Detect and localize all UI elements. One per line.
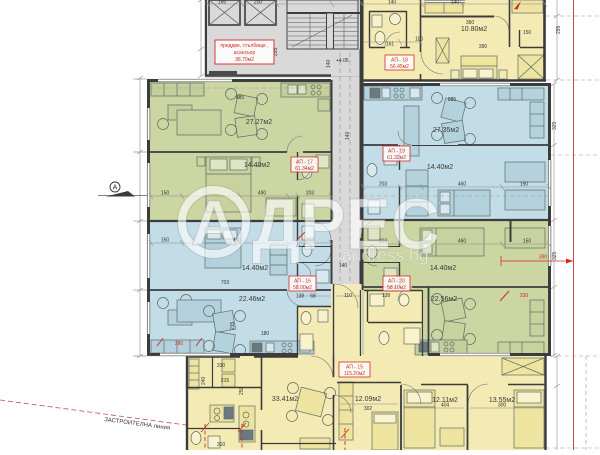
svg-text:325: 325	[552, 251, 558, 260]
svg-text:180: 180	[261, 331, 270, 337]
svg-text:460: 460	[458, 239, 467, 245]
svg-text:61.34м2: 61.34м2	[295, 166, 314, 172]
svg-text:12.09м2: 12.09м2	[355, 396, 381, 403]
svg-text:390: 390	[479, 44, 488, 50]
svg-text:АП - 16: АП - 16	[294, 279, 311, 285]
svg-text:address.bg: address.bg	[342, 245, 429, 265]
svg-text:14.40м2: 14.40м2	[427, 164, 453, 171]
svg-text:A: A	[113, 185, 118, 192]
svg-text:280: 280	[175, 341, 184, 347]
svg-text:703: 703	[221, 280, 230, 286]
svg-text:885: 885	[236, 95, 245, 101]
svg-text:14.40м2: 14.40м2	[430, 265, 456, 272]
svg-text:+4.05: +4.05	[336, 58, 349, 64]
svg-text:110: 110	[344, 293, 352, 299]
svg-text:АП - 15: АП - 15	[346, 365, 363, 371]
svg-text:310: 310	[217, 363, 226, 369]
svg-text:61.32м2: 61.32м2	[387, 155, 406, 161]
svg-text:27.27м2: 27.27м2	[246, 119, 272, 126]
svg-text:А: А	[191, 187, 237, 259]
svg-text:22.46м2: 22.46м2	[239, 296, 265, 303]
svg-text:22.56м2: 22.56м2	[431, 296, 457, 303]
svg-text:215: 215	[230, 321, 236, 330]
svg-text:АП - 20: АП - 20	[388, 279, 405, 285]
svg-text:390: 390	[539, 255, 548, 261]
svg-text:230: 230	[520, 293, 529, 299]
svg-text:460: 460	[458, 182, 467, 188]
svg-text:АП - 19: АП - 19	[388, 149, 405, 155]
svg-text:13.55м2: 13.55м2	[489, 397, 515, 404]
svg-text:140: 140	[326, 59, 332, 68]
svg-text:150: 150	[520, 182, 529, 188]
svg-text:140: 140	[345, 131, 351, 140]
svg-text:240: 240	[201, 376, 207, 385]
svg-text:161: 161	[386, 42, 395, 48]
svg-text:885: 885	[448, 97, 457, 103]
svg-text:140: 140	[451, 0, 460, 6]
svg-text:56.45м2: 56.45м2	[390, 64, 409, 70]
svg-text:14.40м2: 14.40м2	[242, 265, 268, 272]
svg-text:преддве, стълбище ,: преддве, стълбище ,	[220, 43, 268, 49]
svg-text:33.41м2: 33.41м2	[272, 396, 298, 403]
svg-text:310: 310	[217, 442, 226, 448]
svg-text:27.35м2: 27.35м2	[433, 127, 459, 134]
svg-text:302: 302	[364, 406, 373, 412]
svg-text:150: 150	[523, 239, 532, 245]
svg-text:асансьор: асансьор	[234, 50, 256, 56]
svg-text:110: 110	[415, 37, 423, 43]
svg-text:14.40м2: 14.40м2	[244, 162, 270, 169]
svg-text:38.70м2: 38.70м2	[235, 57, 254, 63]
svg-text:200: 200	[254, 0, 263, 6]
svg-text:115.20м2: 115.20м2	[344, 371, 365, 377]
svg-text:58.00м2: 58.00м2	[293, 285, 312, 291]
svg-text:140: 140	[388, 0, 397, 6]
svg-text:138: 138	[382, 293, 391, 299]
svg-text:10.80м2: 10.80м2	[461, 26, 487, 33]
svg-text:250: 250	[239, 386, 245, 395]
svg-text:138: 138	[296, 294, 305, 300]
svg-text:68: 68	[310, 294, 316, 300]
svg-text:150: 150	[523, 30, 532, 36]
svg-text:12.11м2: 12.11м2	[432, 397, 458, 404]
svg-text:325: 325	[552, 121, 558, 130]
svg-text:150: 150	[161, 238, 170, 244]
svg-text:215: 215	[221, 378, 230, 384]
svg-text:АП - 18: АП - 18	[391, 58, 408, 64]
svg-text:150: 150	[161, 191, 170, 197]
svg-text:58.10м2: 58.10м2	[387, 285, 406, 291]
svg-text:АП - 17: АП - 17	[296, 160, 313, 166]
svg-text:295: 295	[556, 25, 562, 34]
svg-text:166: 166	[218, 0, 227, 6]
